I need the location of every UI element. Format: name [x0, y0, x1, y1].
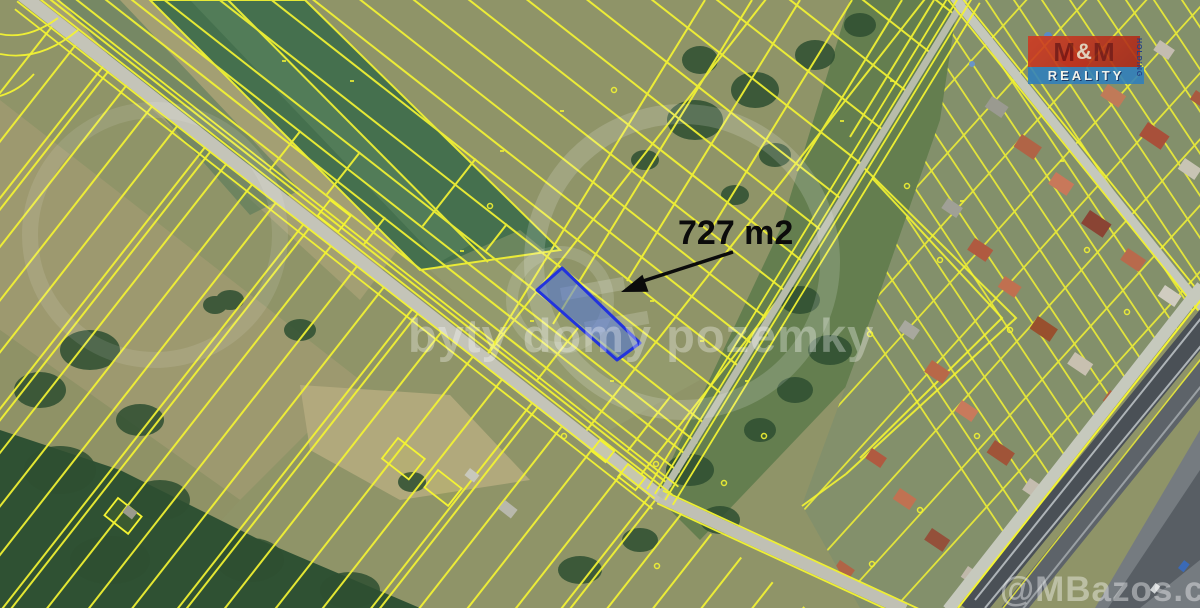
map-screenshot: byty domy pozemky 727 m2 M&M HOLDING REA… — [0, 0, 1200, 608]
area-label: 727 m2 — [678, 214, 793, 253]
logo-holding-text: HOLDING — [1135, 38, 1142, 77]
corner-watermark-text: @MBazos.cz — [1000, 570, 1200, 608]
logo-m2: M — [1093, 39, 1115, 65]
agency-logo: M&M HOLDING REALITY — [1028, 36, 1144, 84]
logo-reality-text: REALITY — [1028, 67, 1144, 84]
logo-ampersand: & — [1076, 41, 1092, 63]
logo-mm-block: M&M HOLDING — [1028, 36, 1140, 67]
aerial-map-canvas — [0, 0, 1200, 608]
center-watermark-text: byty domy pozemky — [408, 308, 874, 363]
logo-m1: M — [1053, 39, 1075, 65]
